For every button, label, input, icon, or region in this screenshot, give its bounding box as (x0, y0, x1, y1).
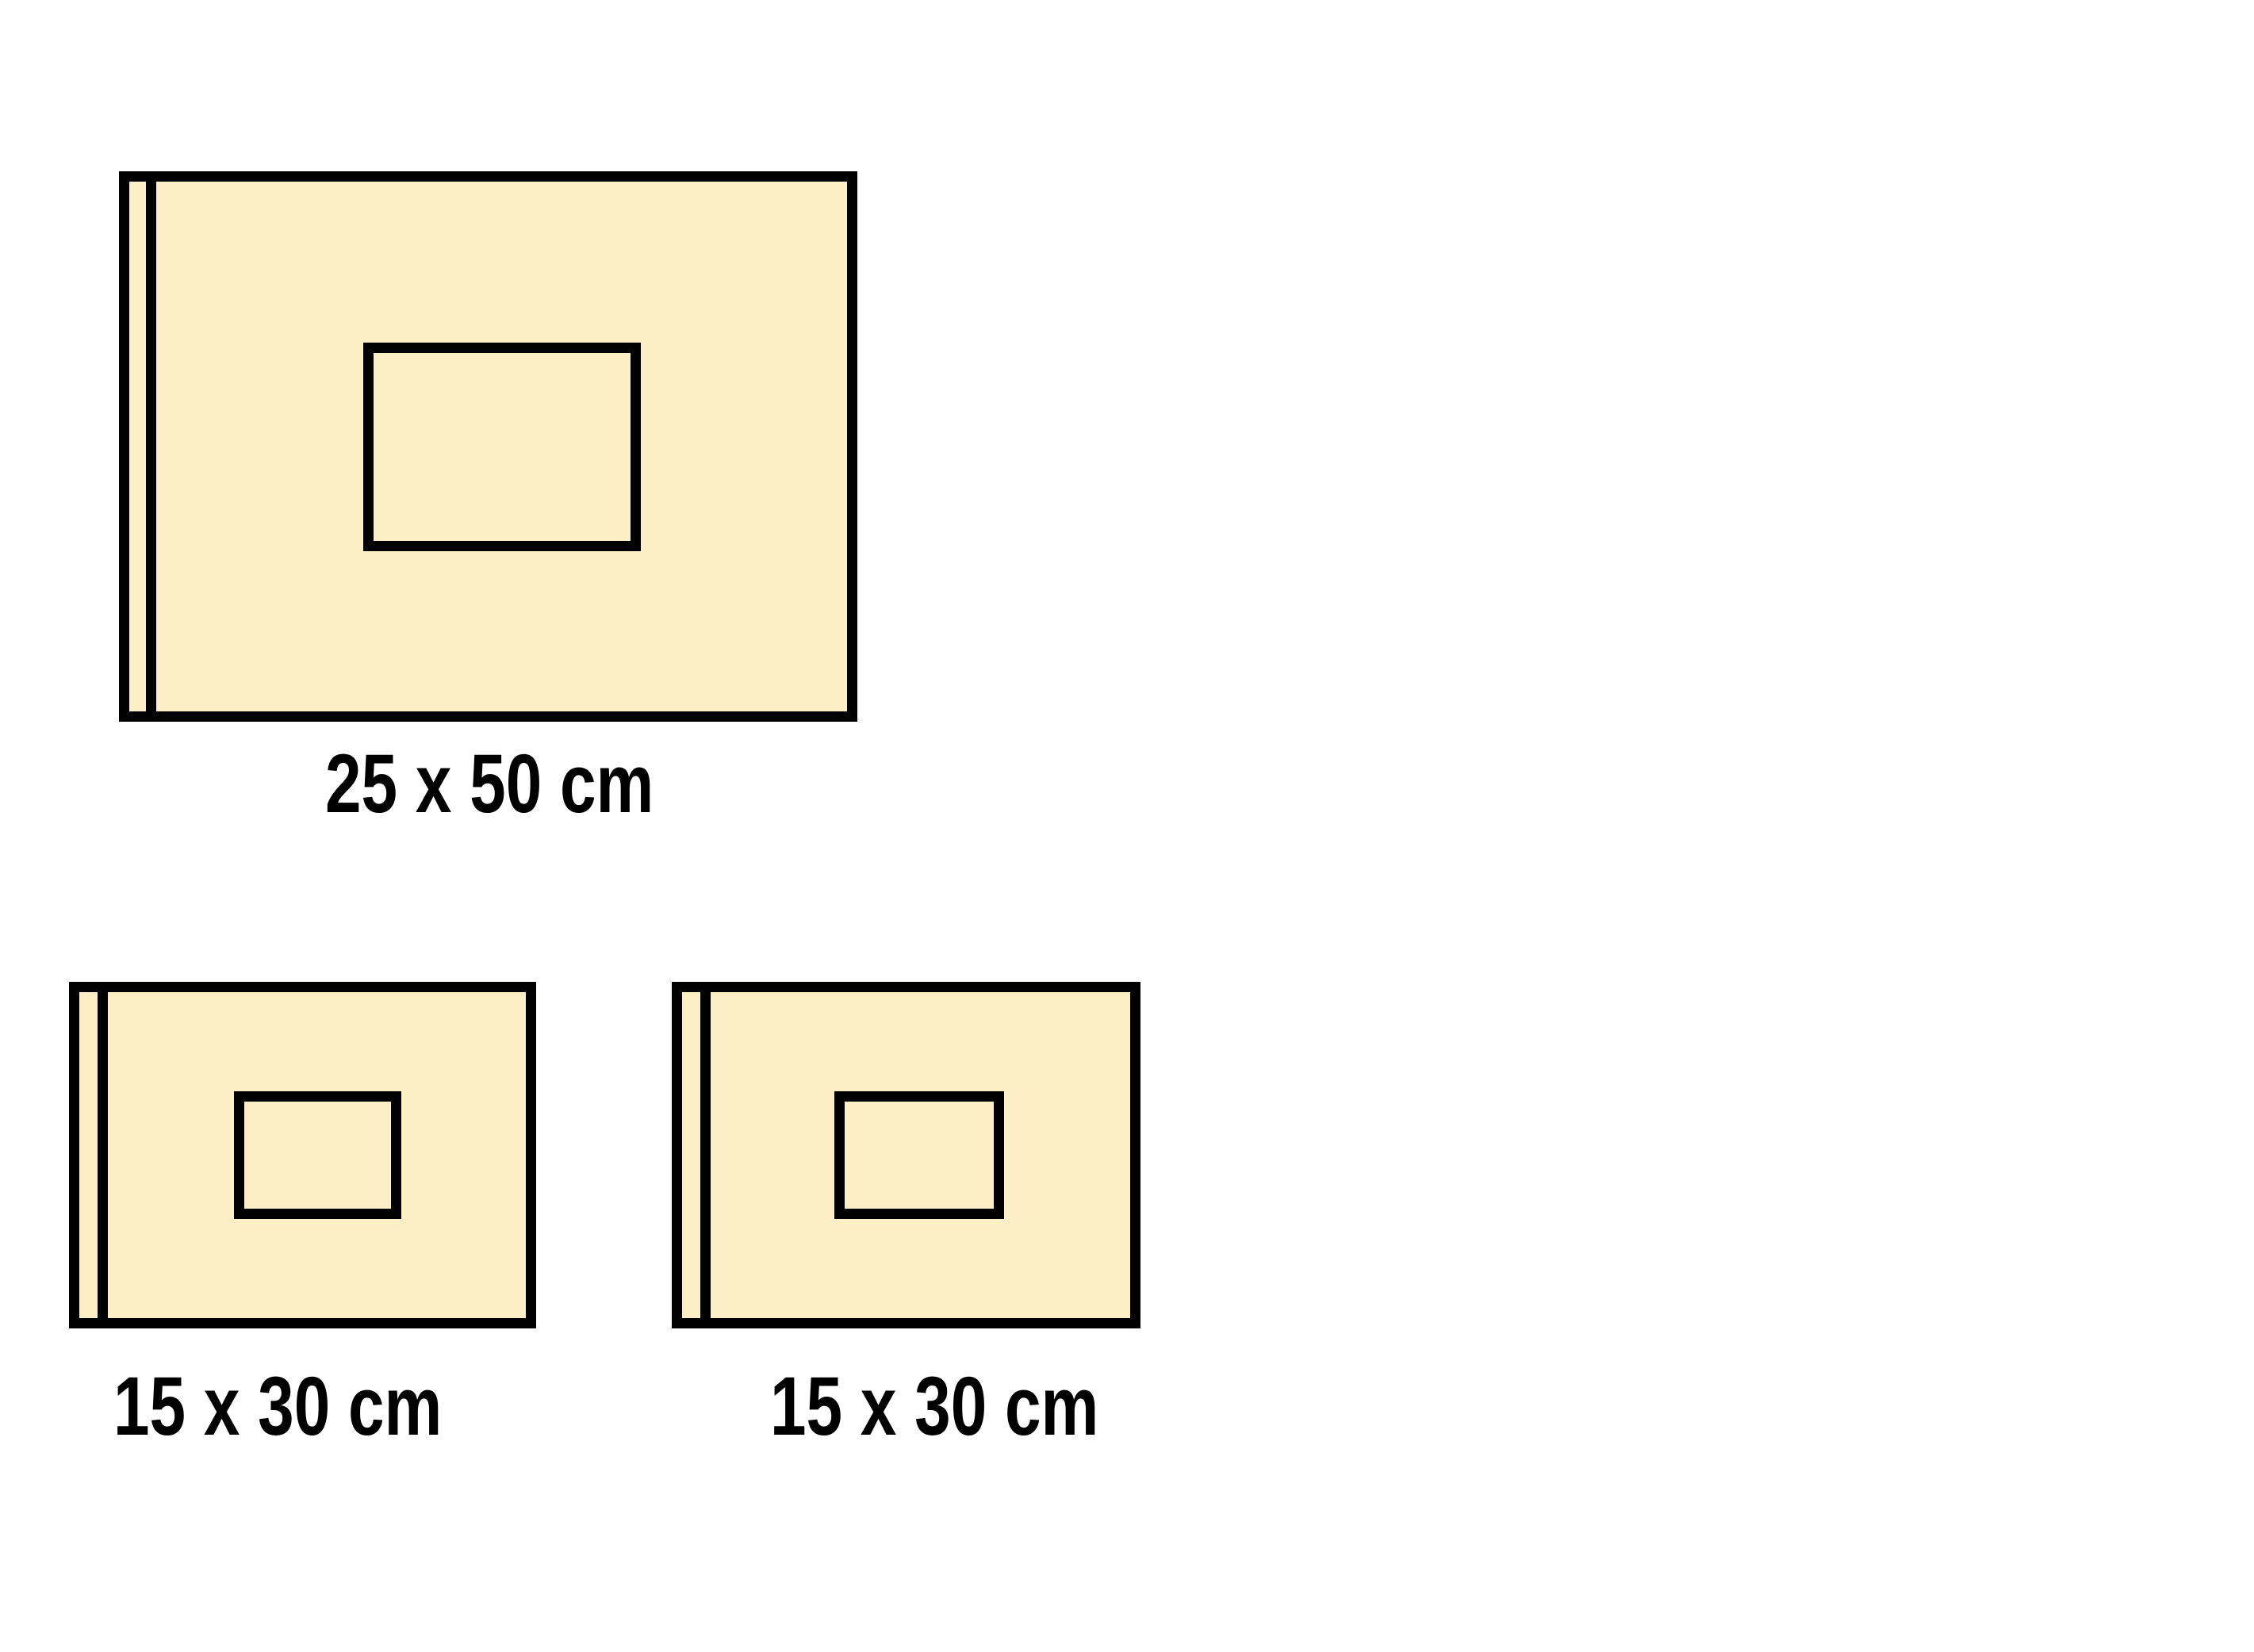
drape-small-1-fold-line (98, 992, 108, 1318)
drape-large-fold-line (146, 182, 156, 711)
drape-large-size-label: 25 x 50 cm (325, 742, 654, 826)
drape-size-diagram: 25 x 50 cm 15 x 30 cm 15 x 30 cm (0, 0, 2254, 1652)
drape-small-2-aperture-window (834, 1091, 1004, 1219)
drape-small-1-aperture-window (234, 1091, 401, 1219)
drape-small-1-outline (69, 982, 536, 1328)
drape-large-aperture-window (363, 343, 641, 551)
drape-small-2-fold-line (700, 992, 711, 1318)
drape-large-outline (119, 171, 857, 722)
drape-small-2-outline (672, 982, 1140, 1328)
drape-small-2-size-label: 15 x 30 cm (770, 1365, 1098, 1448)
drape-small-1-size-label: 15 x 30 cm (113, 1365, 442, 1448)
